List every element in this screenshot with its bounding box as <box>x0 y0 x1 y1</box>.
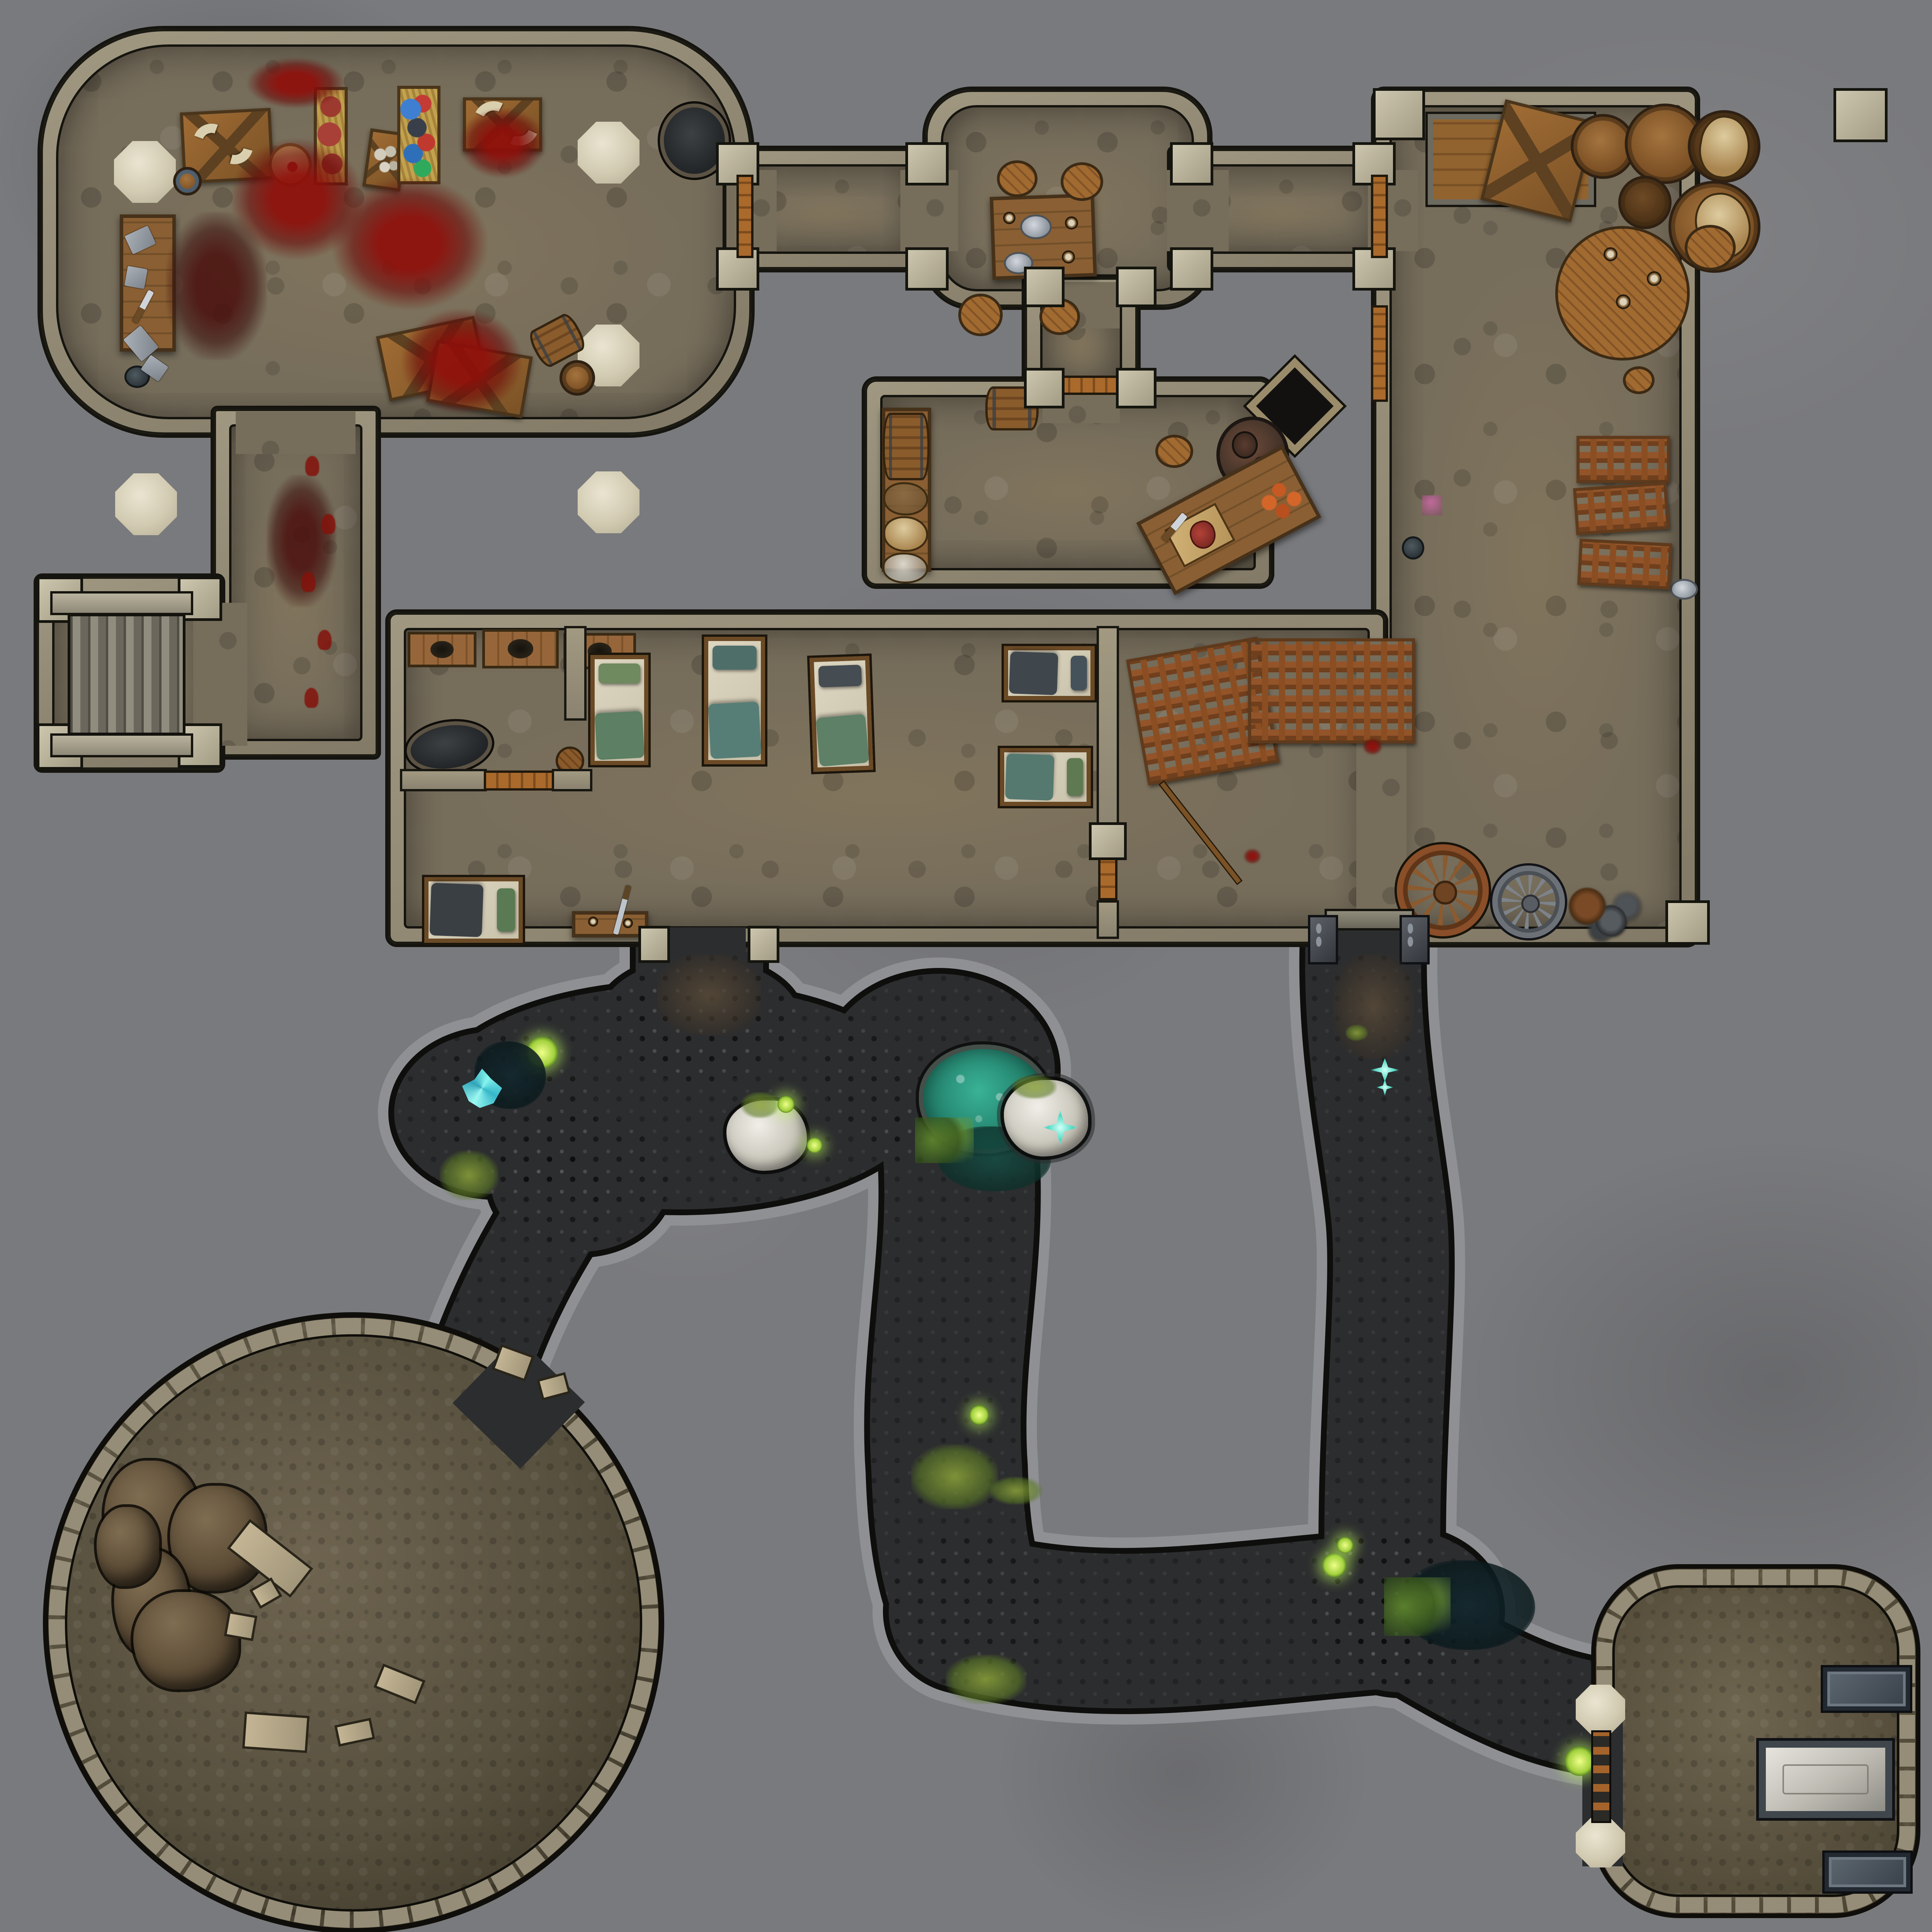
post <box>1024 368 1065 408</box>
mug <box>1616 294 1631 309</box>
stone-slab <box>224 1611 257 1641</box>
sack <box>883 553 928 583</box>
flask <box>623 918 633 928</box>
door <box>1098 855 1117 900</box>
bloody-footprint <box>318 630 332 650</box>
ferns <box>915 1117 974 1163</box>
post <box>1170 247 1213 291</box>
post <box>1024 267 1065 307</box>
barrel <box>1618 176 1672 229</box>
boulder <box>133 1592 238 1689</box>
portcullis-grate <box>1573 482 1670 536</box>
bucket <box>173 167 202 196</box>
glow-mushroom <box>777 1096 794 1113</box>
door <box>1371 305 1388 402</box>
flask <box>588 917 598 927</box>
portcullis-large <box>1248 638 1415 743</box>
funnel <box>124 266 148 289</box>
mug <box>1062 250 1075 264</box>
stool <box>1685 225 1736 270</box>
soil-patch <box>657 954 761 1036</box>
moss <box>440 1151 498 1200</box>
portcullis-grate <box>1577 539 1672 590</box>
partition-wall <box>400 769 487 791</box>
bloody-footprint <box>305 456 319 476</box>
blood-drip <box>1243 849 1261 864</box>
glow-mushroom <box>970 1405 988 1425</box>
glow-mushroom <box>1322 1553 1346 1577</box>
privy-bench <box>482 629 559 668</box>
blood-pool <box>332 178 487 309</box>
post <box>905 247 949 291</box>
door <box>484 770 554 791</box>
moss <box>741 1092 779 1118</box>
post <box>1116 267 1156 307</box>
mug <box>1604 247 1617 261</box>
bed <box>1000 748 1091 806</box>
sack <box>883 516 928 552</box>
post <box>1373 88 1425 140</box>
blood-pool <box>460 108 545 178</box>
blood-pool <box>402 309 522 413</box>
sarcophagus <box>1759 1741 1892 1818</box>
pillar <box>115 473 177 535</box>
stool <box>997 160 1037 197</box>
dried-blood <box>166 213 267 359</box>
post <box>1170 142 1213 185</box>
portcullis-grate <box>1577 436 1670 483</box>
mug <box>1647 271 1662 286</box>
stone-coffin <box>1825 1853 1910 1891</box>
pillar <box>114 141 176 203</box>
moss <box>990 1477 1042 1505</box>
bloody-footprint <box>304 688 318 708</box>
blood-drip <box>1362 738 1383 755</box>
pillar <box>578 122 639 184</box>
crypt-threshold <box>1591 1730 1611 1823</box>
stool <box>1061 162 1103 201</box>
post <box>1089 822 1127 860</box>
plate <box>1020 214 1052 239</box>
bed <box>704 637 765 764</box>
post <box>905 142 949 185</box>
stool <box>1155 435 1193 468</box>
stair-rail <box>50 591 193 615</box>
post <box>1116 368 1156 408</box>
doorway-floor-6 <box>236 412 355 454</box>
partition-wall <box>1097 626 1119 856</box>
door <box>736 175 753 258</box>
sack <box>883 482 928 515</box>
round-table <box>1555 226 1690 361</box>
weapon-bench <box>572 911 648 937</box>
stool <box>958 294 1003 336</box>
bed <box>1004 646 1095 700</box>
plate <box>1402 536 1424 560</box>
glow-mushroom <box>807 1138 822 1153</box>
crypt-pillar <box>1576 1818 1625 1867</box>
stone-slab <box>242 1711 310 1753</box>
moss <box>946 1655 1026 1704</box>
partition-wall <box>1097 900 1119 939</box>
barrel <box>560 360 595 396</box>
mug <box>1003 212 1015 224</box>
gem-crate <box>397 86 440 184</box>
blood-spatter <box>247 58 344 108</box>
bloody-footprint <box>301 572 315 592</box>
soil-patch <box>1333 954 1414 1059</box>
glow-mushroom <box>1565 1747 1594 1776</box>
moss <box>911 1444 998 1509</box>
bed <box>424 877 523 943</box>
bloody-footprint <box>321 514 335 534</box>
barrel <box>883 413 930 480</box>
bed <box>590 655 648 765</box>
plate-cutlery <box>1670 579 1698 600</box>
dungeon-map <box>0 0 1932 1932</box>
staircase <box>68 614 185 735</box>
pillar <box>578 471 639 533</box>
door <box>1371 175 1388 258</box>
post <box>1833 88 1888 142</box>
partition-wall <box>564 626 587 721</box>
ferns <box>1384 1577 1451 1636</box>
winch-wheel <box>1492 866 1565 938</box>
glow-mushroom <box>1337 1537 1353 1553</box>
stool <box>1623 366 1655 394</box>
privy-bench <box>408 632 476 667</box>
chain-coils <box>1565 880 1644 948</box>
stone-coffin <box>1823 1667 1910 1711</box>
stair-rail <box>50 733 193 757</box>
post <box>1665 900 1710 945</box>
boulder <box>97 1507 159 1586</box>
crypt-pillar <box>1576 1685 1625 1734</box>
pink-flower <box>1422 495 1442 515</box>
bed <box>810 656 873 772</box>
moss-glow <box>1345 1025 1368 1041</box>
moss <box>1012 1075 1057 1099</box>
partition-wall <box>552 769 592 791</box>
mug <box>1065 216 1078 230</box>
